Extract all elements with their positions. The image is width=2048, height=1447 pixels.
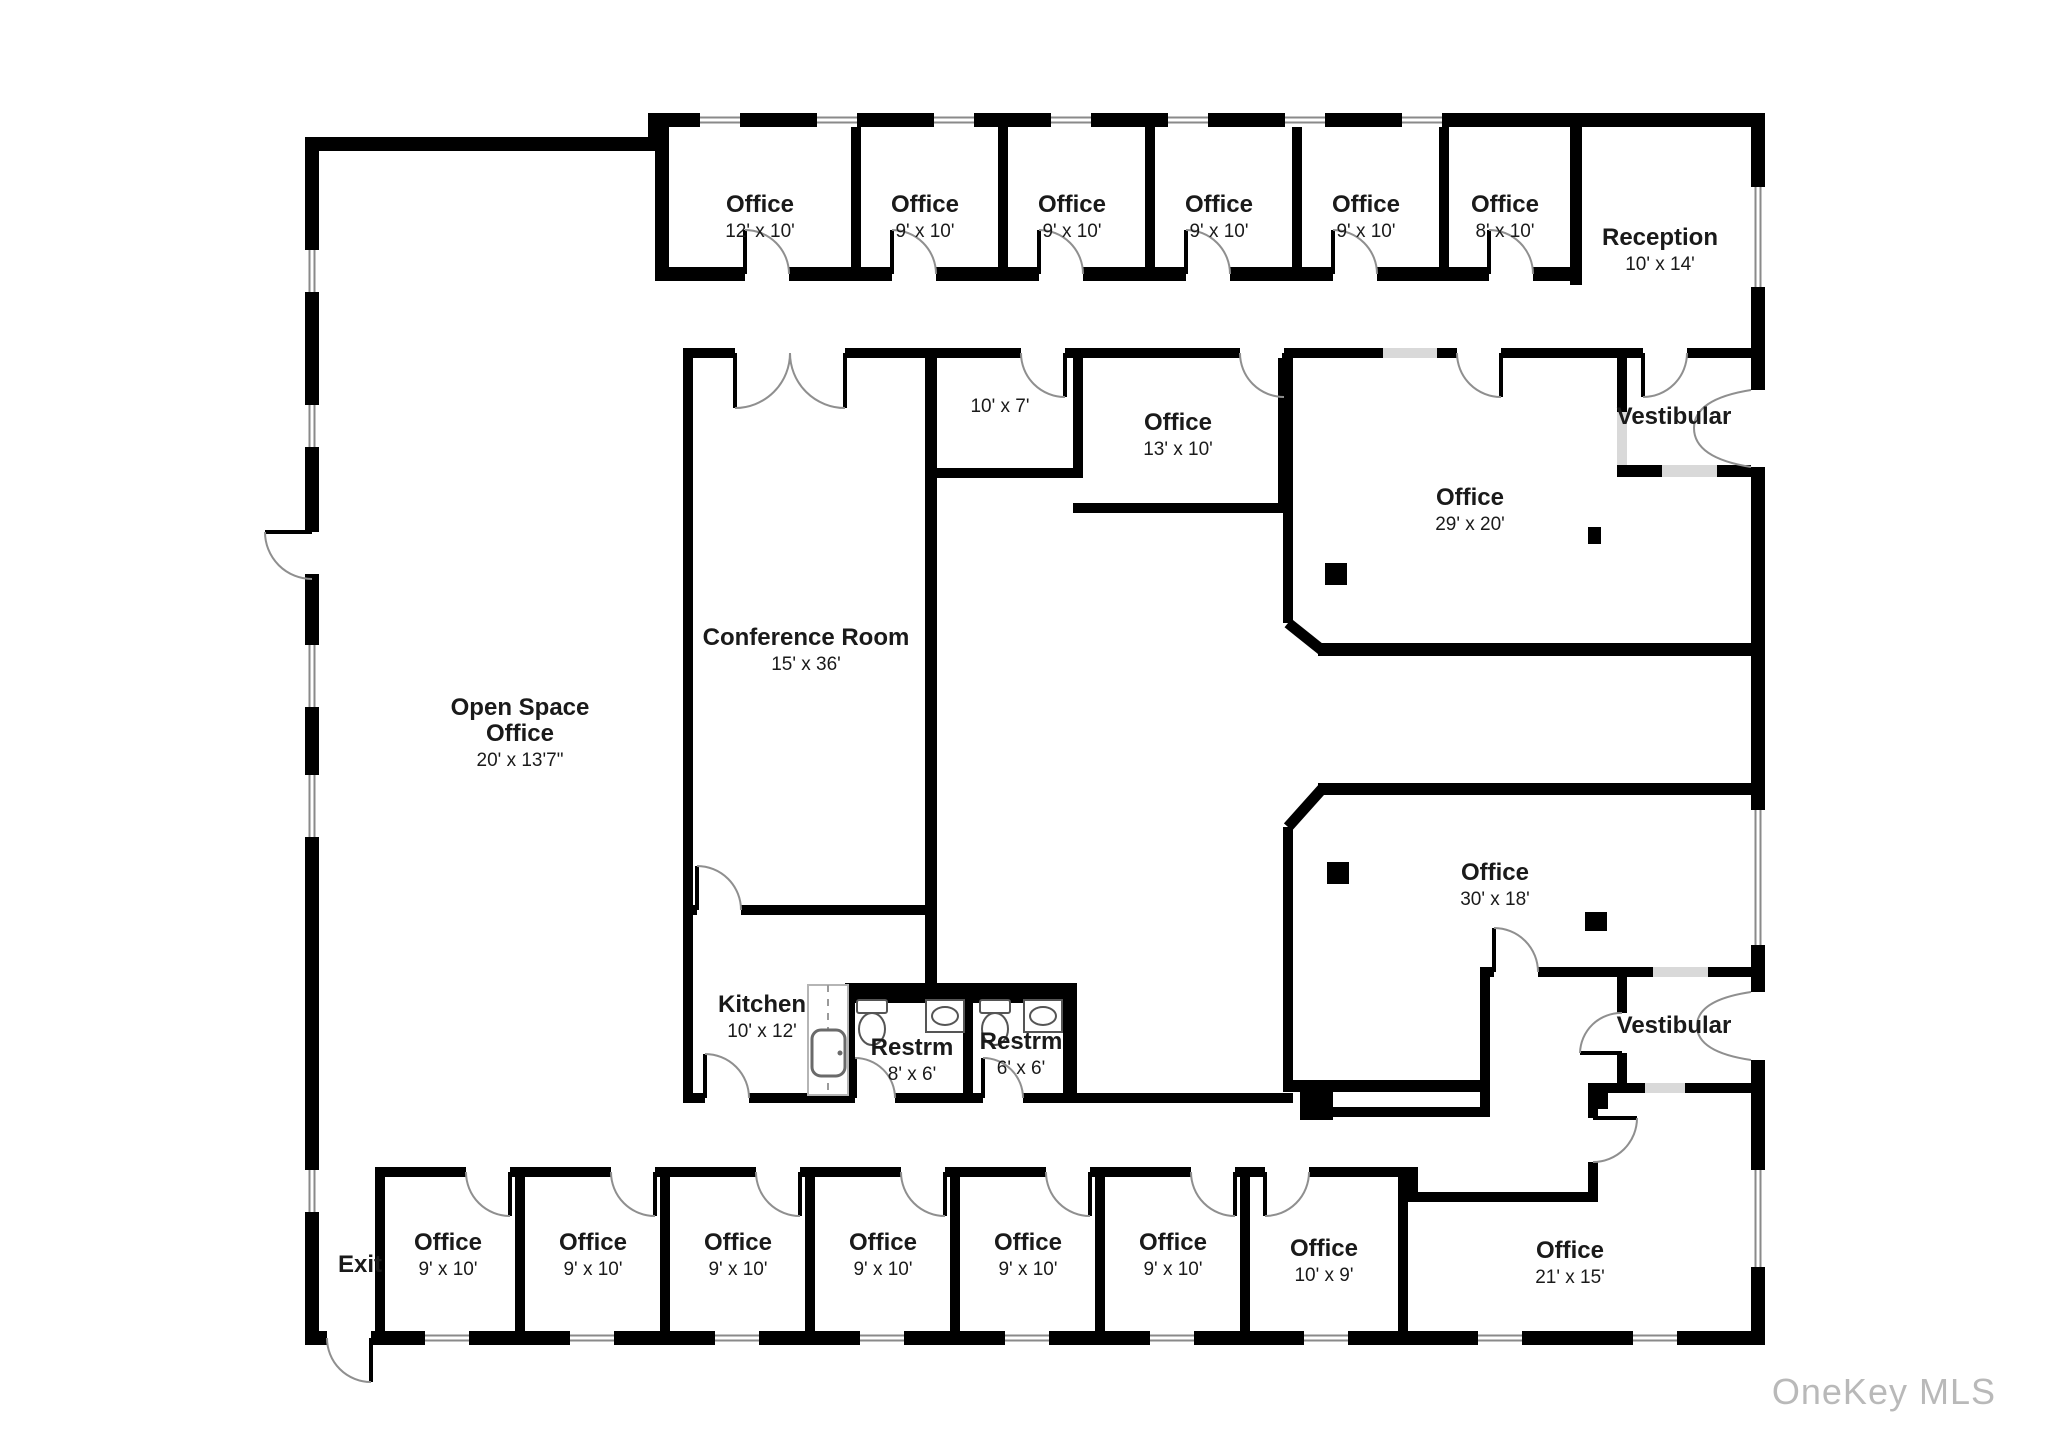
window [305,1170,319,1212]
room-label: Restrm [871,1034,954,1061]
room-label: Office [704,1229,772,1256]
column [1300,1087,1333,1120]
room-label: Vestibular [1617,1012,1732,1039]
room-label: Office [1139,1229,1207,1256]
room-label: Open Space [451,694,590,721]
room-dims: 30' x 18' [1460,889,1530,910]
room-dims: 29' x 20' [1435,514,1505,535]
window [1005,1331,1049,1345]
room-label: Office [1536,1237,1604,1264]
room-label: Office [849,1229,917,1256]
window [1751,1170,1765,1267]
window [1478,1331,1522,1345]
window [1168,113,1208,127]
room-label: Office [414,1229,482,1256]
room-label: Restrm [980,1028,1063,1055]
room-dims: 10' x 7' [970,396,1029,417]
column [1585,912,1607,931]
window [1051,113,1091,127]
room-dims: 6' x 6' [997,1058,1045,1079]
sink-icon [926,1000,964,1032]
columns [1300,527,1608,1120]
room-dims: 10' x 12' [727,1021,797,1042]
door [466,1172,510,1216]
room-dims: 9' x 10' [998,1259,1057,1280]
window [1751,810,1765,945]
window [1633,1331,1677,1345]
column [1588,1083,1608,1109]
room-dims: 10' x 14' [1625,254,1695,275]
column [1327,862,1349,884]
room-label: Office [1436,484,1504,511]
room-dims: 21' x 15' [1535,1267,1605,1288]
door [1021,353,1065,397]
window [305,250,319,292]
room-label: Office [1461,859,1529,886]
room-label: Office [1144,409,1212,436]
room-label: Office [486,720,554,747]
window [305,405,319,447]
window [715,1331,759,1345]
room-label: Office [994,1229,1062,1256]
window [700,113,740,127]
door [611,1172,655,1216]
door [756,1172,800,1216]
room-dims: 10' x 9' [1294,1265,1353,1286]
window [305,645,319,707]
room-dims: 13' x 10' [1143,439,1213,460]
door [1643,353,1687,397]
room-dims: 8' x 10' [1475,221,1534,242]
room-dims: 8' x 6' [888,1064,936,1085]
door [1046,1172,1090,1216]
interior-walls [375,127,1765,1331]
floor-plan: Office 12' x 10' Office 9' x 10' Office … [0,0,2048,1447]
door [901,1172,945,1216]
exterior-door [265,532,312,579]
glass-panel [1645,1083,1685,1093]
column [1325,563,1347,585]
room-label: Office [1185,191,1253,218]
kitchen-counter-icon [808,985,848,1095]
window [934,113,974,127]
room-label: Office [726,191,794,218]
door [1593,1118,1637,1162]
window [425,1331,469,1345]
room-dims: 15' x 36' [771,654,841,675]
room-dims: 9' x 10' [1336,221,1395,242]
window [860,1331,904,1345]
room-dims: 9' x 10' [1143,1259,1202,1280]
room-label: Office [1290,1235,1358,1262]
room-label: Office [891,191,959,218]
room-dims: 9' x 10' [563,1259,622,1280]
room-dims: 9' x 10' [708,1259,767,1280]
door [1457,353,1501,397]
door [1240,353,1284,397]
room-dims: 9' x 10' [895,221,954,242]
window [1402,113,1442,127]
room-label: Office [559,1229,627,1256]
glass-panel [1383,348,1437,358]
room-label: Office [1332,191,1400,218]
window [1304,1331,1348,1345]
room-label: Vestibular [1617,403,1732,430]
room-label: Kitchen [718,991,806,1018]
glass-panel [1653,967,1708,977]
room-label: Exit [338,1251,382,1278]
room-dims: 9' x 10' [418,1259,477,1280]
door [697,866,741,910]
room-dims: 12' x 10' [725,221,795,242]
room-dims: 9' x 10' [853,1259,912,1280]
room-label: Office [1471,191,1539,218]
room-label: Reception [1602,224,1718,251]
door [1265,1172,1309,1216]
room-label: Conference Room [703,624,910,651]
room-dims: 9' x 10' [1042,221,1101,242]
glass-panel [1662,465,1717,477]
door [705,1054,749,1098]
room-dims: 9' x 10' [1189,221,1248,242]
window [1150,1331,1194,1345]
room-dims: 20' x 13'7" [477,750,564,771]
column [1588,527,1601,544]
window [817,113,857,127]
door [1191,1172,1235,1216]
watermark: OneKey MLS [1772,1371,1996,1413]
window [1285,113,1325,127]
door [1494,928,1538,972]
window [570,1331,614,1345]
window [1751,187,1765,287]
room-label: Office [1038,191,1106,218]
double-door [735,353,845,408]
window [305,775,319,837]
